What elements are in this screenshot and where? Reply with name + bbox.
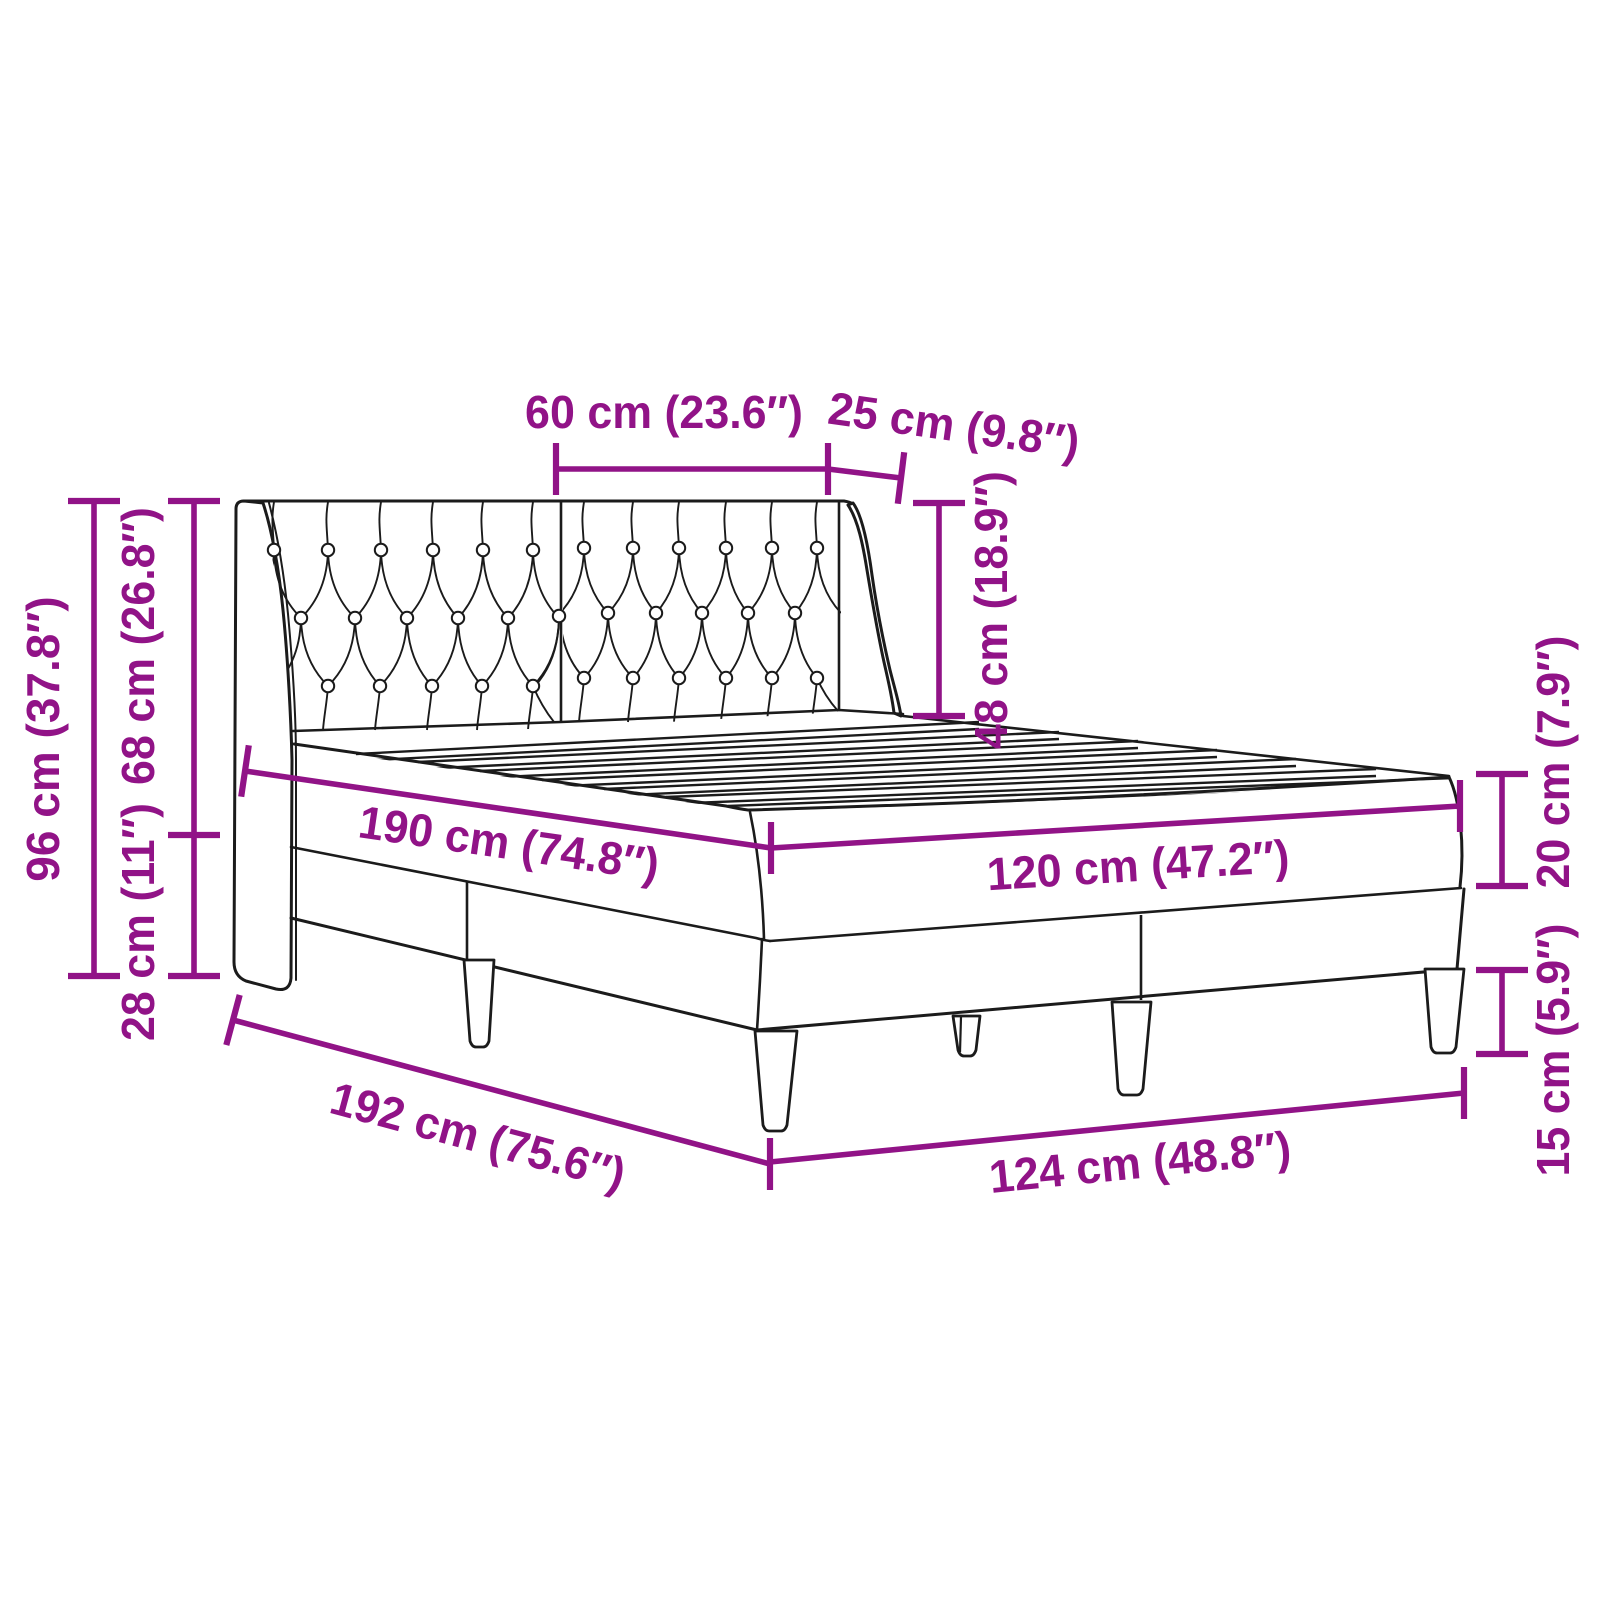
- svg-text:15 cm (5.9″): 15 cm (5.9″): [1527, 924, 1579, 1177]
- svg-text:48 cm (18.9″): 48 cm (18.9″): [965, 471, 1017, 749]
- svg-text:20 cm (7.9″): 20 cm (7.9″): [1527, 636, 1579, 889]
- svg-text:68 cm (26.8″): 68 cm (26.8″): [112, 507, 164, 785]
- svg-text:60 cm (23.6″): 60 cm (23.6″): [525, 386, 803, 438]
- svg-text:28 cm (11″): 28 cm (11″): [112, 803, 164, 1041]
- svg-text:96 cm (37.8″): 96 cm (37.8″): [17, 596, 69, 881]
